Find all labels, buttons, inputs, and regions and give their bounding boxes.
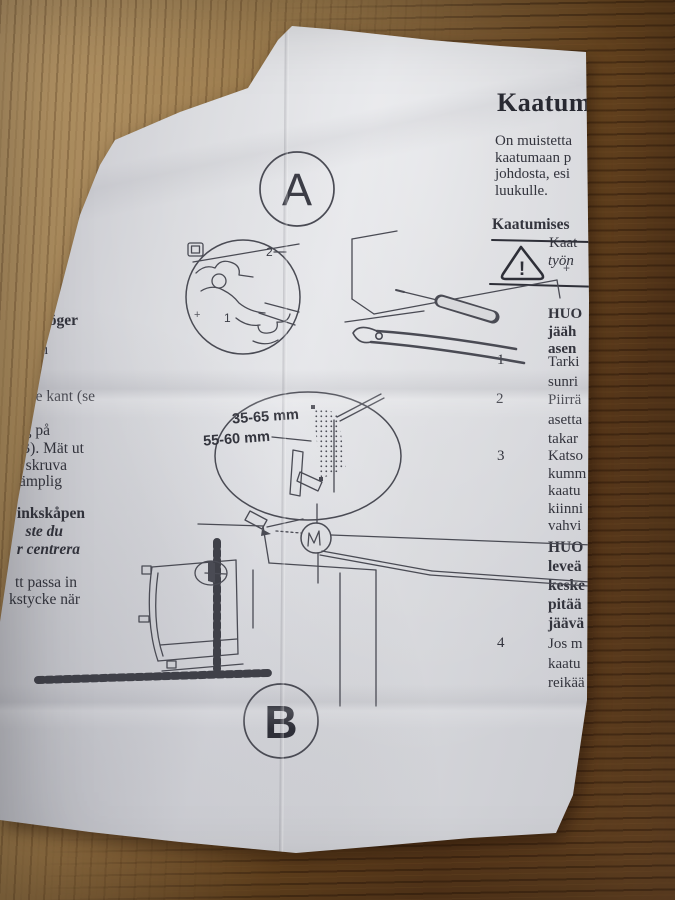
floor-hatch — [38, 673, 268, 680]
diagram-artwork: ! A — [0, 0, 675, 900]
instruction-leaflet-page: te ska kunna r barn l när kan så höger o… — [0, 0, 675, 900]
text-line: r barn — [34, 156, 76, 172]
diagram-bracket-dimensions: 35-65 mm 55-60 mm — [203, 392, 401, 527]
callout-2-label: 2 — [266, 245, 273, 259]
diagram-a-badge: A — [260, 152, 334, 226]
pencil-icon — [245, 511, 271, 536]
paper-wrap: te ska kunna r barn l när kan så höger o… — [0, 0, 675, 900]
text-line: te ska kunna — [16, 138, 100, 154]
dimension-bottom-label: 55-60 mm — [203, 429, 271, 450]
photo-of-instruction-leaflet: te ska kunna r barn l när kan så höger o… — [0, 0, 675, 900]
diagram-appliance-corner: + — [345, 231, 570, 363]
diagram-wall-marking — [245, 504, 619, 706]
text-line: kan — [25, 295, 50, 311]
callout-1-label: 1 — [224, 311, 231, 325]
warning-triangle-icon: ! — [502, 247, 543, 280]
dimension-top-label: 35-65 mm — [232, 407, 300, 428]
warning-exclamation: ! — [519, 259, 525, 280]
text-line: l när — [35, 224, 63, 240]
pliers-icon — [353, 327, 524, 363]
plus-mark: + — [194, 309, 200, 321]
plus-mark: + — [563, 261, 570, 275]
